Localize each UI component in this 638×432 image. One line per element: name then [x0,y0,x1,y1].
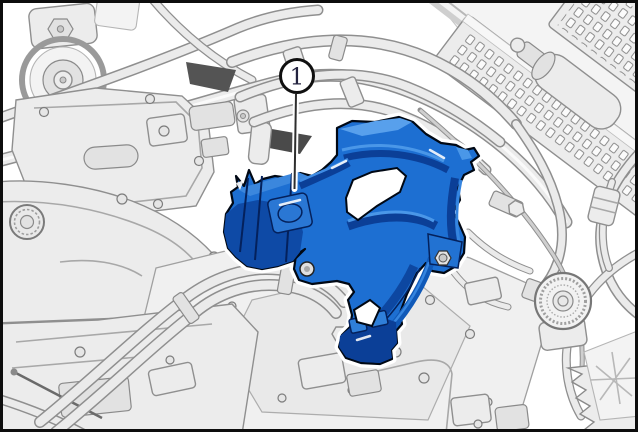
engine-bay-illustration: 1 [0,0,638,432]
technical-illustration-page: 1 [0,0,638,432]
callout-label: 1 [290,65,305,91]
